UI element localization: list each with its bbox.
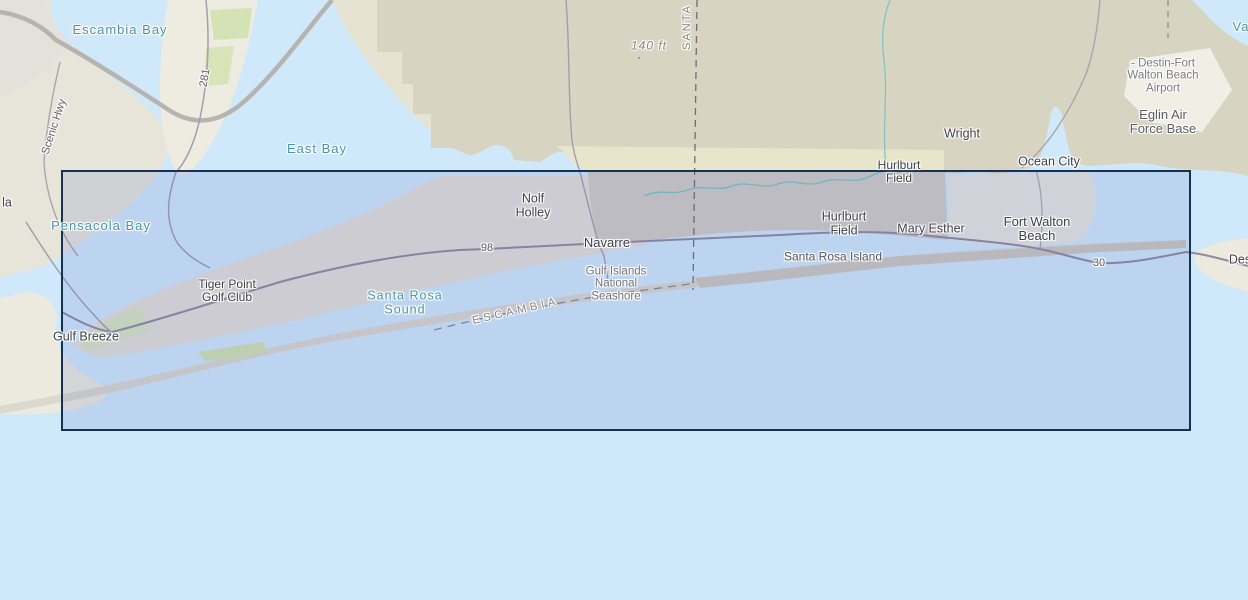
label-gulf-breeze: Gulf Breeze <box>53 330 119 344</box>
label-hurlburt-field: Hurlburt Field <box>822 211 866 238</box>
label-santa-rosa-sound: Santa Rosa Sound <box>367 290 442 317</box>
elevation-point-marker <box>638 57 640 59</box>
label-navarre: Navarre <box>584 236 630 250</box>
label-gulf-islands-national-seashore: Gulf Islands National Seashore <box>586 265 647 302</box>
label-tiger-point-golf-club: Tiger Point Golf Club <box>198 278 256 304</box>
label-elevation-140ft: 140 ft <box>631 40 667 53</box>
label-santa-rosa-island: Santa Rosa Island <box>784 251 882 264</box>
label-wright: Wright <box>944 127 980 141</box>
label-eglin-air-force-base: Eglin Air Force Base <box>1130 108 1196 136</box>
label-nolf-holley: Nolf Holley <box>516 193 551 220</box>
label-destin-partial: Des <box>1229 253 1248 267</box>
label-pensacola-bay: Pensacola Bay <box>51 219 151 233</box>
label-destin-airport: - Destin-Fort Walton Beach Airport <box>1127 57 1198 94</box>
label-east-bay: East Bay <box>287 142 347 156</box>
map-viewport[interactable]: Escambia Bay East Bay Pensacola Bay Sant… <box>0 0 1248 600</box>
label-hurlburt-field-north: Hurlburt Field <box>878 159 921 185</box>
label-fort-walton-beach: Fort Walton Beach <box>1004 215 1071 243</box>
label-mary-esther: Mary Esther <box>897 222 964 236</box>
label-escambia-bay: Escambia Bay <box>72 23 167 37</box>
label-road-98: 98 <box>481 243 493 255</box>
label-pensacola-partial: la <box>2 196 12 210</box>
park-garcon-1 <box>210 8 252 40</box>
label-ocean-city: Ocean City <box>1018 155 1080 169</box>
label-valparaiso-partial: Va <box>1233 20 1248 34</box>
label-road-30: 30 <box>1093 258 1105 270</box>
label-county-santa-rosa: SANTA <box>682 4 694 50</box>
